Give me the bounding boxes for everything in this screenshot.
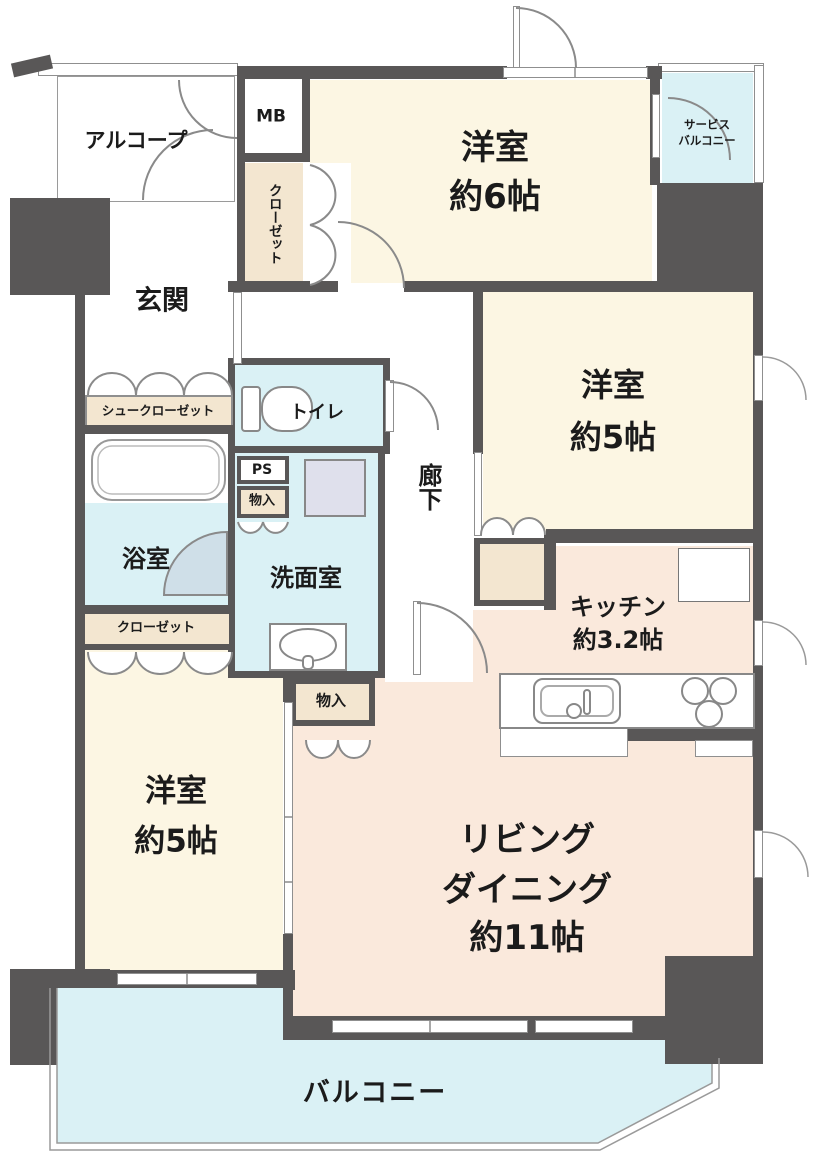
label-western5-west-size: 約5帖 (134, 827, 218, 858)
label-service-balcony-1: サービス (684, 119, 730, 131)
label-kitchen: キッチン (570, 595, 666, 619)
label-alcove: アルコープ (84, 131, 187, 152)
label-living-1: リビング (459, 823, 595, 857)
pillar-nw (10, 198, 110, 295)
label-bathroom: 浴室 (122, 547, 170, 571)
window-fan (763, 832, 808, 877)
label-western6-size: 約6帖 (449, 180, 541, 214)
window (754, 620, 763, 666)
alcove-top-rail (38, 63, 238, 76)
sliding-partition (284, 702, 293, 934)
label-service-balcony-2: バルコニー (678, 135, 735, 147)
label-washroom: 洗面室 (270, 566, 342, 590)
wall (473, 292, 483, 454)
label-mb: MB (256, 109, 286, 126)
wall (404, 281, 475, 292)
kitchen-wall-stub (628, 727, 763, 741)
pillar-ne (657, 183, 763, 288)
counter-lower (500, 727, 628, 757)
door-arc-western6-top (516, 8, 576, 68)
door-gap (652, 94, 660, 158)
label-living-size: 約11帖 (469, 921, 584, 955)
room-closet-east (474, 538, 552, 606)
label-kitchen-size: 約3.2帖 (573, 628, 664, 652)
label-western5-east: 洋室 (581, 369, 645, 401)
window (503, 67, 648, 78)
wall (237, 66, 507, 79)
room-western5-west (85, 650, 283, 973)
label-closet-west: クローゼット (117, 622, 195, 635)
floor-plan: アルコープ MB クローゼット 洋室 約6帖 サービス バルコニー 玄関 シュー… (0, 0, 834, 1166)
refrigerator-space (678, 548, 750, 602)
wall (85, 425, 233, 434)
wall (546, 529, 763, 543)
window (754, 830, 763, 878)
room-western5-east (483, 292, 753, 532)
service-balcony-right-rail (754, 65, 764, 183)
window (754, 355, 763, 401)
window-fan (763, 622, 806, 665)
window (535, 1020, 633, 1033)
label-closet-north: クローゼット (266, 184, 280, 265)
wall-left (75, 292, 85, 973)
wall (283, 678, 293, 702)
label-ps: PS (252, 463, 272, 477)
pillar-se (665, 956, 763, 1064)
window-fan (763, 357, 806, 400)
wall (302, 66, 310, 162)
shoe-closet-folding-doors (88, 373, 232, 395)
label-hallway: 廊下 (416, 463, 440, 511)
partition (233, 292, 242, 364)
label-genkan: 玄関 (135, 288, 189, 315)
door-leaf (385, 380, 394, 432)
window (117, 973, 257, 985)
label-storage1: 物入 (249, 495, 275, 508)
door-leaf (513, 6, 520, 68)
partition (474, 452, 482, 536)
label-toilet: トイレ (290, 404, 344, 422)
label-storage2: 物入 (316, 694, 346, 709)
wall (228, 281, 338, 292)
window (332, 1020, 528, 1033)
label-balcony: バルコニー (303, 1080, 447, 1107)
closet-north-door-zone (305, 163, 351, 283)
wall (237, 66, 245, 292)
wall (646, 66, 662, 79)
door-leaf (413, 601, 421, 675)
label-western6: 洋室 (461, 131, 529, 165)
wall (239, 153, 305, 162)
label-western5-east-size: 約5帖 (570, 421, 656, 453)
wall (544, 534, 556, 610)
label-living-2: ダイニング (442, 873, 612, 907)
service-balcony-top-rail (658, 63, 764, 72)
wall (471, 281, 763, 292)
label-shoe-closet: シュークローゼット (102, 405, 215, 418)
label-western5-west: 洋室 (145, 777, 207, 808)
counter-end (695, 740, 753, 757)
